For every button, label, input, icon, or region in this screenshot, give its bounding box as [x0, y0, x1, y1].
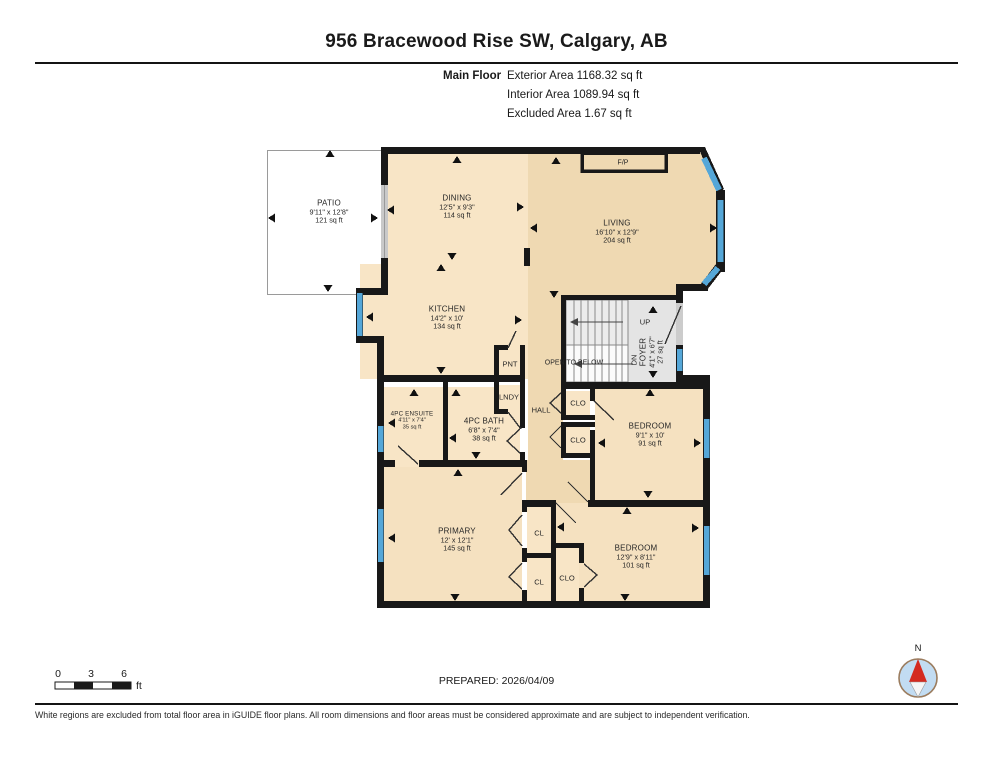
room-label-bath: 4PC BATH 6'8" x 7'4" 38 sq ft [464, 417, 504, 444]
room-label-living: LIVING 16'10" x 12'9" 204 sq ft [595, 219, 638, 246]
pantry-label: PNT [503, 360, 518, 369]
room-label-dining: DINING 12'5" x 9'3" 114 sq ft [439, 194, 474, 221]
room-label-ensuite: 4PC ENSUITE 4'11" x 7'4" 35 sq ft [391, 410, 434, 431]
room-label-bedroom-south: BEDROOM 12'9" x 8'11" 101 sq ft [615, 544, 658, 571]
stairs-down-label: DN [630, 355, 639, 366]
floorplan-graphic [0, 0, 993, 768]
footer-divider [35, 703, 958, 705]
page-title: 956 Bracewood Rise SW, Calgary, AB [0, 31, 993, 53]
interior-area: Interior Area 1089.94 sq ft [507, 89, 642, 101]
floorplan-page: 956 Bracewood Rise SW, Calgary, AB Main … [0, 0, 993, 768]
laundry-label: LNDY [499, 393, 519, 402]
area-summary: Exterior Area 1168.32 sq ft Interior Are… [507, 70, 642, 127]
room-label-foyer: FOYER 4'1" x 6'7" 27 sq ft [639, 336, 666, 367]
room-label-kitchen: KITCHEN 14'2" x 10' 134 sq ft [429, 305, 466, 332]
staircase [566, 300, 633, 382]
closet-label-cl-1: CL [534, 529, 544, 538]
room-label-primary: PRIMARY 12' x 12'1" 145 sq ft [438, 527, 476, 554]
closet-label-cl-2: CL [534, 578, 544, 587]
fireplace-label: F/P [618, 160, 629, 167]
disclaimer-text: White regions are excluded from total fl… [35, 710, 958, 720]
prepared-date: PREPARED: 2026/04/09 [0, 675, 993, 687]
hall-label: HALL [532, 406, 551, 415]
compass-north-label: N [915, 643, 922, 654]
closet-label-south: CLO [559, 574, 574, 583]
excluded-area: Excluded Area 1.67 sq ft [507, 108, 642, 120]
closet-label-hall-1: CLO [570, 399, 585, 408]
exterior-area: Exterior Area 1168.32 sq ft [507, 70, 642, 82]
stairs-up-label: UP [640, 318, 650, 327]
closet-label-hall-2: CLO [570, 436, 585, 445]
open-to-below-label: OPEN TO BELOW [545, 360, 603, 367]
room-label-bedroom-east: BEDROOM 9'1" x 10' 91 sq ft [629, 422, 672, 449]
floor-label: Main Floor [443, 70, 501, 82]
header-divider [35, 62, 958, 64]
room-label-patio: PATIO 9'11" x 12'8" 121 sq ft [310, 199, 349, 226]
